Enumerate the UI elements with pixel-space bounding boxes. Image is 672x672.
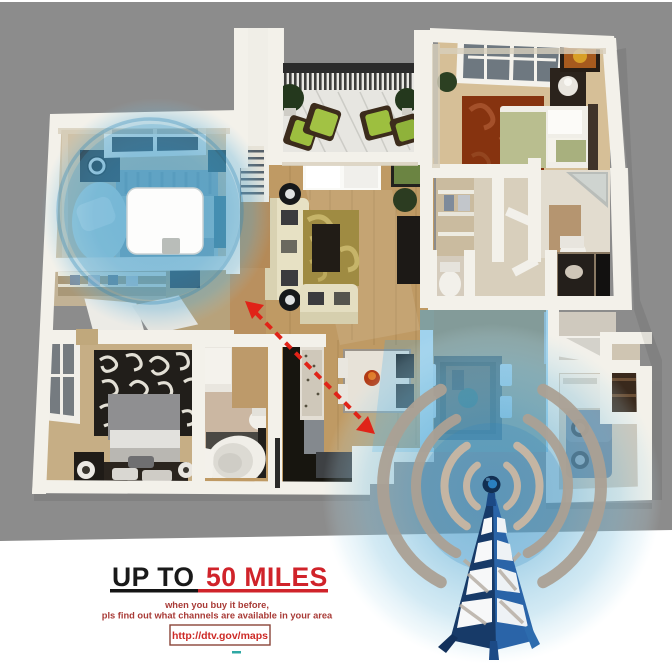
svg-text:UP TO: UP TO [112,562,195,592]
svg-text:http://dtv.gov/maps: http://dtv.gov/maps [172,630,268,642]
svg-text:50 MILES: 50 MILES [206,562,328,592]
svg-text:when you buy it before,: when you buy it before, [164,600,269,610]
svg-text:pls find out what channels are: pls find out what channels are available… [102,611,333,621]
